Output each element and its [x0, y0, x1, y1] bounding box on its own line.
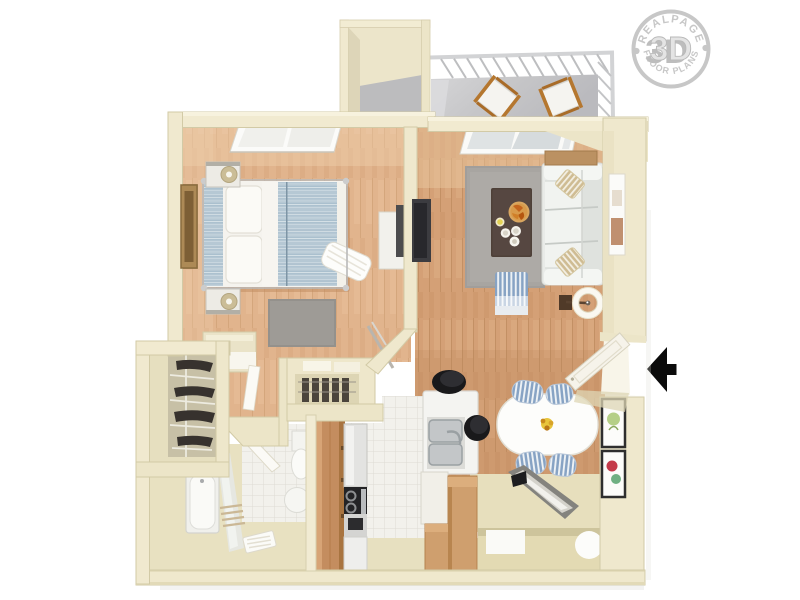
- svg-text:3D: 3D: [650, 30, 692, 67]
